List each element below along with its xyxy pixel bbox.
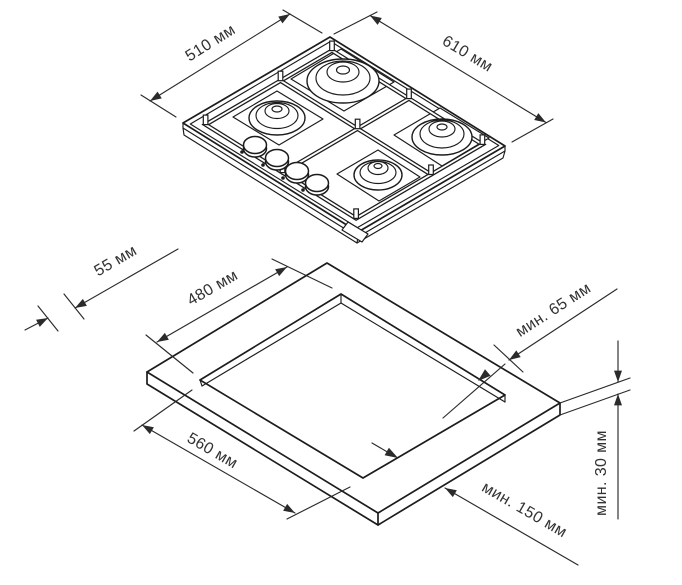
burner-left bbox=[249, 101, 305, 135]
thickness-dimension: мин. 30 мм bbox=[560, 341, 630, 519]
dim-label-worktop-thickness: мин. 30 мм bbox=[593, 430, 610, 516]
dim-label-rear-clearance: мин. 65 мм bbox=[513, 280, 594, 341]
installation-diagram-svg: 510 мм 610 мм bbox=[0, 0, 682, 585]
burner-large bbox=[307, 59, 379, 103]
dim-label-hob-width: 610 мм bbox=[439, 33, 495, 76]
worktop-cutout-view: 55 мм 480 мм 560 мм мин. 65 мм bbox=[25, 242, 630, 565]
dim-label-side-clearance: мин. 150 мм bbox=[479, 479, 570, 541]
burner-front bbox=[354, 160, 402, 190]
front-offset-dimension: 55 мм bbox=[25, 242, 178, 331]
dim-label-cutout-depth: 480 мм bbox=[184, 267, 241, 309]
hob-top-view: 510 мм 610 мм bbox=[141, 10, 553, 243]
dim-label-hob-depth: 510 мм bbox=[183, 21, 239, 65]
installation-diagram: 510 мм 610 мм bbox=[0, 0, 682, 585]
burner-right bbox=[412, 119, 472, 155]
